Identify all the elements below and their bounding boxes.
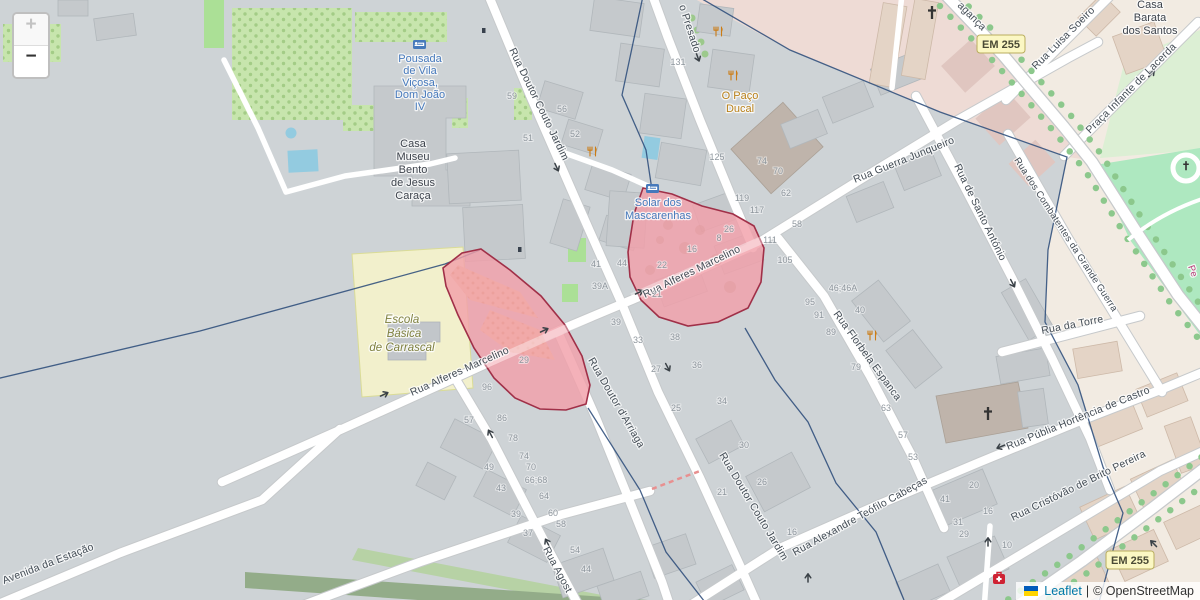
house-number: 8	[716, 233, 721, 243]
house-number: 36	[692, 360, 702, 370]
house-number: 10	[1002, 540, 1012, 550]
house-number: 105	[777, 255, 792, 265]
map-container[interactable]: Rua Doutor Couto Jardim Rua Doutor Couto…	[0, 0, 1200, 600]
poi-label-paco-ducal: O Paço Ducal	[722, 90, 759, 115]
svg-text:Básica: Básica	[387, 328, 422, 340]
house-number: 25	[671, 403, 681, 413]
svg-text:Dom João: Dom João	[395, 89, 445, 101]
svg-text:IV: IV	[415, 101, 426, 113]
svg-text:de Carrascal: de Carrascal	[369, 342, 435, 354]
svg-text:dos Santos: dos Santos	[1122, 25, 1178, 37]
house-number: 16	[787, 527, 797, 537]
svg-text:Barata: Barata	[1134, 12, 1167, 24]
attribution-separator: |	[1086, 584, 1089, 598]
house-number: 22	[657, 260, 667, 270]
house-number: 16	[983, 506, 993, 516]
house-number: 37	[523, 528, 533, 538]
zoom-in-button[interactable]: +	[14, 14, 48, 45]
house-number: 86	[497, 413, 507, 423]
house-number: 33	[633, 335, 643, 345]
osm-copyright: © OpenStreetMap	[1093, 584, 1194, 598]
house-number: 56	[557, 104, 567, 114]
house-number: 46;46A	[829, 283, 858, 293]
house-number: 63	[881, 403, 891, 413]
em255-badge: EM 255	[1111, 555, 1149, 567]
house-number: 57	[464, 415, 474, 425]
bus-stop-icon	[518, 247, 522, 252]
house-number: 29	[519, 355, 529, 365]
zoom-control: + −	[12, 12, 50, 79]
house-number: 26	[724, 224, 734, 234]
house-number: 30	[739, 440, 749, 450]
svg-text:Mascarenhas: Mascarenhas	[625, 210, 692, 222]
house-number: 74	[757, 156, 767, 166]
house-number: 27	[651, 364, 661, 374]
hotel-icon	[413, 40, 426, 49]
hotel-icon	[646, 184, 659, 193]
house-number: 59	[507, 91, 517, 101]
house-number: 39	[611, 317, 621, 327]
house-number: 31	[953, 517, 963, 527]
house-number: 74	[519, 451, 529, 461]
svg-text:Caraça: Caraça	[395, 190, 431, 202]
house-number: 52	[570, 129, 580, 139]
house-number: 64	[539, 491, 549, 501]
svg-text:Museu: Museu	[396, 151, 429, 163]
house-number: 62	[781, 188, 791, 198]
house-number: 53	[908, 452, 918, 462]
house-number: 96	[482, 382, 492, 392]
svg-text:Bento: Bento	[399, 164, 428, 176]
house-number: 20	[969, 480, 979, 490]
house-number: 44	[581, 564, 591, 574]
house-number: 54	[570, 545, 580, 555]
svg-text:Pousada: Pousada	[398, 53, 442, 65]
svg-text:Casa: Casa	[400, 138, 427, 150]
svg-text:O Paço: O Paço	[722, 90, 759, 102]
attribution-bar: Leaflet | © OpenStreetMap	[1016, 582, 1200, 600]
house-number: 39A	[592, 281, 608, 291]
svg-text:de Jesus: de Jesus	[391, 177, 436, 189]
house-number: 119	[735, 193, 749, 203]
house-number: 78	[508, 433, 518, 443]
svg-text:Escola: Escola	[385, 314, 420, 326]
house-number: 26	[757, 477, 767, 487]
house-number: 57	[898, 430, 908, 440]
svg-text:Casa: Casa	[1137, 0, 1164, 11]
house-number: 41	[591, 259, 601, 269]
ukraine-flag-icon	[1024, 586, 1038, 596]
bus-stop-icon	[482, 28, 486, 33]
house-number: 91	[814, 310, 824, 320]
house-number: 131	[670, 57, 685, 67]
leaflet-link[interactable]: Leaflet	[1044, 584, 1082, 598]
house-number: 39	[511, 509, 521, 519]
house-number: 95	[805, 297, 815, 307]
svg-text:Ducal: Ducal	[726, 103, 754, 115]
house-number: 89	[826, 327, 836, 337]
house-number: 43	[496, 483, 506, 493]
house-number: 44	[617, 258, 627, 268]
svg-text:Viçosa,: Viçosa,	[402, 77, 438, 89]
svg-text:de Vila: de Vila	[403, 65, 437, 77]
house-number: 38	[670, 332, 680, 342]
house-number: 41	[940, 494, 950, 504]
house-number: 40	[855, 305, 865, 315]
svg-text:Solar dos: Solar dos	[635, 197, 682, 209]
house-number: 58	[556, 519, 566, 529]
house-number: 16	[687, 244, 697, 254]
zoom-out-button[interactable]: −	[14, 45, 48, 77]
house-number: 49	[484, 462, 494, 472]
map-canvas: Rua Doutor Couto Jardim Rua Doutor Couto…	[0, 0, 1200, 600]
house-number: 58	[792, 219, 802, 229]
house-number: 51	[523, 133, 533, 143]
house-number: 70	[773, 166, 783, 176]
pharmacy-icon	[993, 572, 1005, 584]
house-number: 66;68	[525, 475, 548, 485]
house-number: 70	[526, 462, 536, 472]
house-number: 34	[717, 396, 727, 406]
house-number: 21	[652, 289, 662, 299]
house-number: 79	[851, 362, 861, 372]
house-number: 60	[548, 508, 558, 518]
house-number: 21	[717, 487, 727, 497]
house-number: 125	[709, 152, 724, 162]
house-number: 117	[750, 205, 764, 215]
house-number: 29	[959, 529, 969, 539]
em255-badge: EM 255	[982, 39, 1020, 51]
house-number: 111	[763, 235, 777, 245]
